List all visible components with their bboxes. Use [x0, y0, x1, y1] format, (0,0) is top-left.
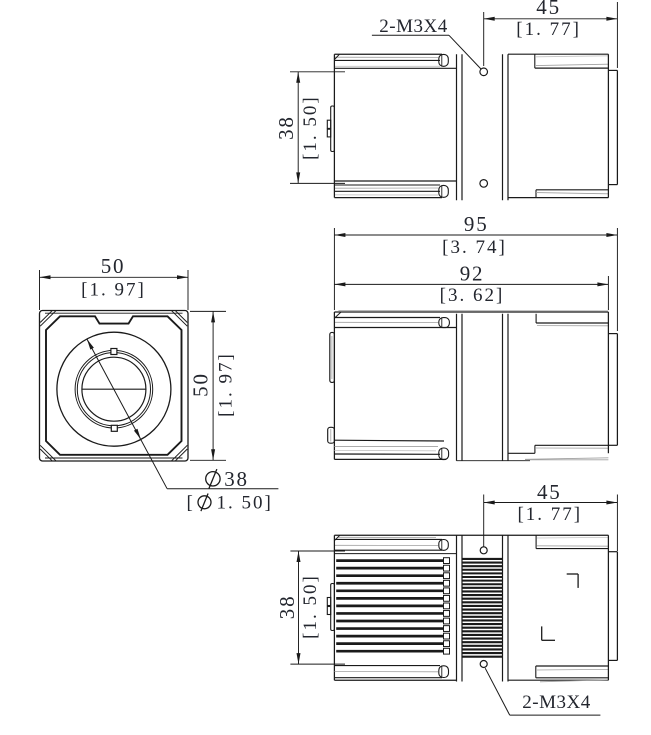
svg-text:[3. 62]: [3. 62]	[440, 285, 505, 306]
svg-text:[1. 50]: [1. 50]	[300, 95, 321, 160]
svg-text:[1. 50]: [1. 50]	[300, 574, 321, 639]
svg-text:38: 38	[224, 467, 249, 491]
svg-text:38: 38	[275, 595, 299, 620]
svg-text:50: 50	[101, 254, 126, 278]
svg-text:[1. 77]: [1. 77]	[516, 19, 581, 40]
svg-text:95: 95	[464, 212, 489, 236]
svg-text:[1. 97]: [1. 97]	[81, 279, 146, 300]
svg-text:[: [	[187, 493, 195, 514]
svg-text:[1. 77]: [1. 77]	[517, 504, 582, 525]
svg-text:50: 50	[189, 372, 213, 397]
svg-text:[3. 74]: [3. 74]	[442, 237, 507, 258]
svg-text:45: 45	[536, 0, 561, 19]
svg-text:2-M3X4: 2-M3X4	[379, 16, 447, 37]
svg-text:92: 92	[460, 261, 485, 285]
svg-text:1. 50]: 1. 50]	[217, 493, 273, 514]
svg-text:2-M3X4: 2-M3X4	[522, 692, 590, 713]
svg-text:38: 38	[274, 115, 298, 140]
svg-text:45: 45	[537, 480, 562, 504]
svg-text:[1. 97]: [1. 97]	[216, 352, 237, 417]
